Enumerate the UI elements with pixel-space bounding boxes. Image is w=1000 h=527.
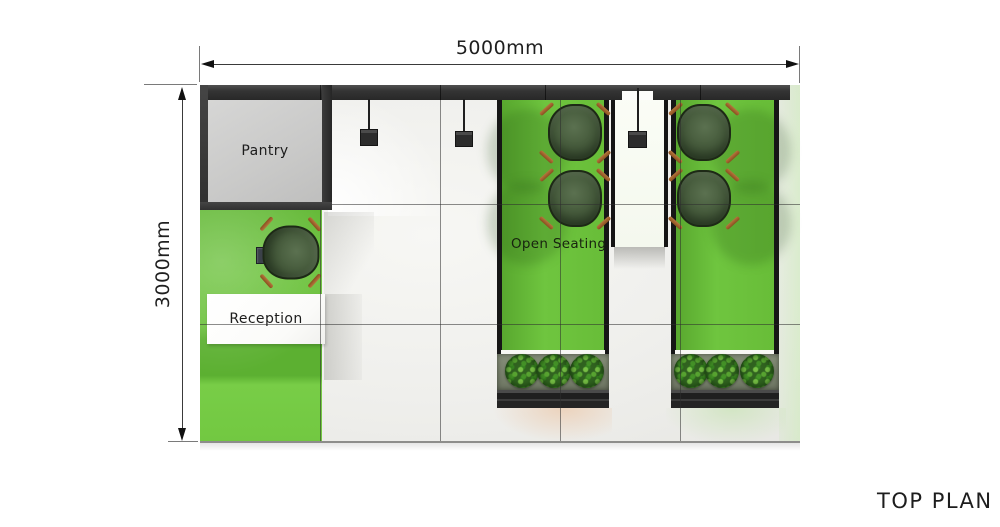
width-dimension-line: [204, 64, 796, 65]
reception-desk: Reception: [207, 294, 325, 344]
pantry-door-light: [328, 98, 448, 216]
arrowhead-up-icon: [178, 87, 186, 100]
gridline-vertical: [440, 100, 441, 443]
arrowhead-right-icon: [786, 60, 799, 68]
carpet-edge-trim: [774, 85, 779, 354]
pendant-stem: [368, 99, 370, 130]
chair-seat: [677, 170, 731, 227]
chair-seat: [677, 104, 731, 161]
wall-seam: [440, 85, 441, 100]
pantry-cast-shadow: [324, 212, 374, 294]
gridline-horizontal: [200, 324, 800, 325]
wall-seam: [545, 85, 546, 100]
extension-line: [199, 46, 200, 82]
planter-base: [497, 390, 609, 408]
extension-line: [168, 441, 198, 442]
pendant-stem: [637, 88, 639, 132]
table-edge: [611, 91, 615, 247]
planter-box: [497, 354, 609, 408]
chair-seat: [263, 226, 320, 280]
height-dimension-label: 3000mm: [152, 220, 174, 308]
planter-base: [671, 390, 779, 408]
planter-reflection: [666, 408, 786, 442]
planter-bush: [570, 354, 604, 388]
open-seating-chair: [677, 170, 731, 227]
arrowhead-down-icon: [178, 428, 186, 441]
pantry-label: Pantry: [241, 143, 288, 159]
open-seating-chair: [548, 104, 602, 161]
top-plan-canvas: Reception Open Seating: [0, 0, 1000, 527]
width-dimension-label: 5000mm: [456, 37, 544, 59]
planter-bush: [505, 354, 539, 388]
chair-seat: [548, 170, 602, 227]
pendant-stem: [463, 99, 465, 132]
height-dimension-line: [182, 90, 183, 438]
planter-bush: [705, 354, 739, 388]
planter-reflection: [492, 408, 612, 442]
table-cast-shadow: [614, 247, 665, 269]
planter-box: [671, 354, 779, 408]
pendant-light-icon: [360, 129, 378, 146]
extension-line: [799, 46, 800, 83]
pantry-wall: [200, 202, 332, 210]
standing-table: [611, 91, 668, 247]
pantry-wall: [322, 85, 332, 202]
page-title: TOP PLAN: [877, 489, 993, 513]
planter-bush: [740, 354, 774, 388]
top-wall: [200, 85, 790, 100]
reception-chair: [263, 226, 320, 280]
desk-cast-shadow: [324, 294, 362, 380]
pendant-light-icon: [455, 131, 473, 147]
open-seating-chair: [677, 104, 731, 161]
extension-line: [144, 84, 197, 85]
wall-seam: [700, 85, 701, 100]
pantry-wall: [200, 85, 208, 210]
wall-seam: [320, 85, 321, 100]
arrowhead-left-icon: [201, 60, 214, 68]
pantry-room: Pantry: [208, 100, 322, 202]
gridline-vertical: [560, 100, 561, 443]
table-edge: [664, 91, 668, 247]
carpet-edge-trim: [497, 85, 502, 354]
gridline-horizontal: [332, 204, 800, 205]
open-seating-label: Open Seating: [511, 236, 606, 252]
plan-bottom-shadow: [200, 443, 800, 451]
chair-seat: [548, 104, 602, 161]
gridline-vertical: [680, 100, 681, 443]
gridline-vertical: [320, 210, 321, 443]
open-seating-chair: [548, 170, 602, 227]
pendant-light-icon: [628, 131, 647, 148]
planter-bush: [537, 354, 571, 388]
